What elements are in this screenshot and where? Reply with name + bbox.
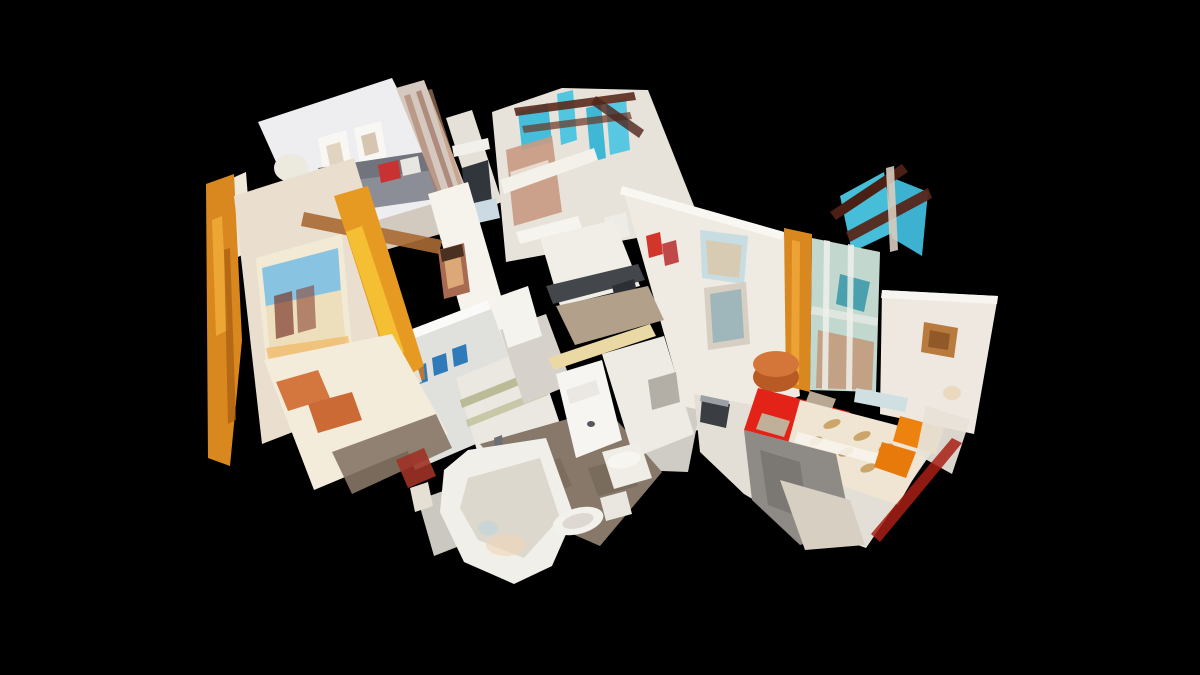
hallway-mirror-glass [710,289,744,343]
bathtub-warm-reflection [486,534,526,556]
bedroom-left-railing-a [274,291,294,339]
bedroom-left-railing-b [296,285,316,333]
door-handle [587,421,595,427]
dollhouse-scene [0,0,1200,675]
kitchen-utensils-red-a [646,232,663,258]
ottoman-top [753,351,799,377]
kitchen-window-view [706,240,742,278]
bedroom-right-sconce [943,386,961,400]
kitchen-utensils-red-b [662,240,679,266]
bathtub-blue-reflection [478,521,498,535]
dollhouse-viewport[interactable] [0,0,1200,675]
